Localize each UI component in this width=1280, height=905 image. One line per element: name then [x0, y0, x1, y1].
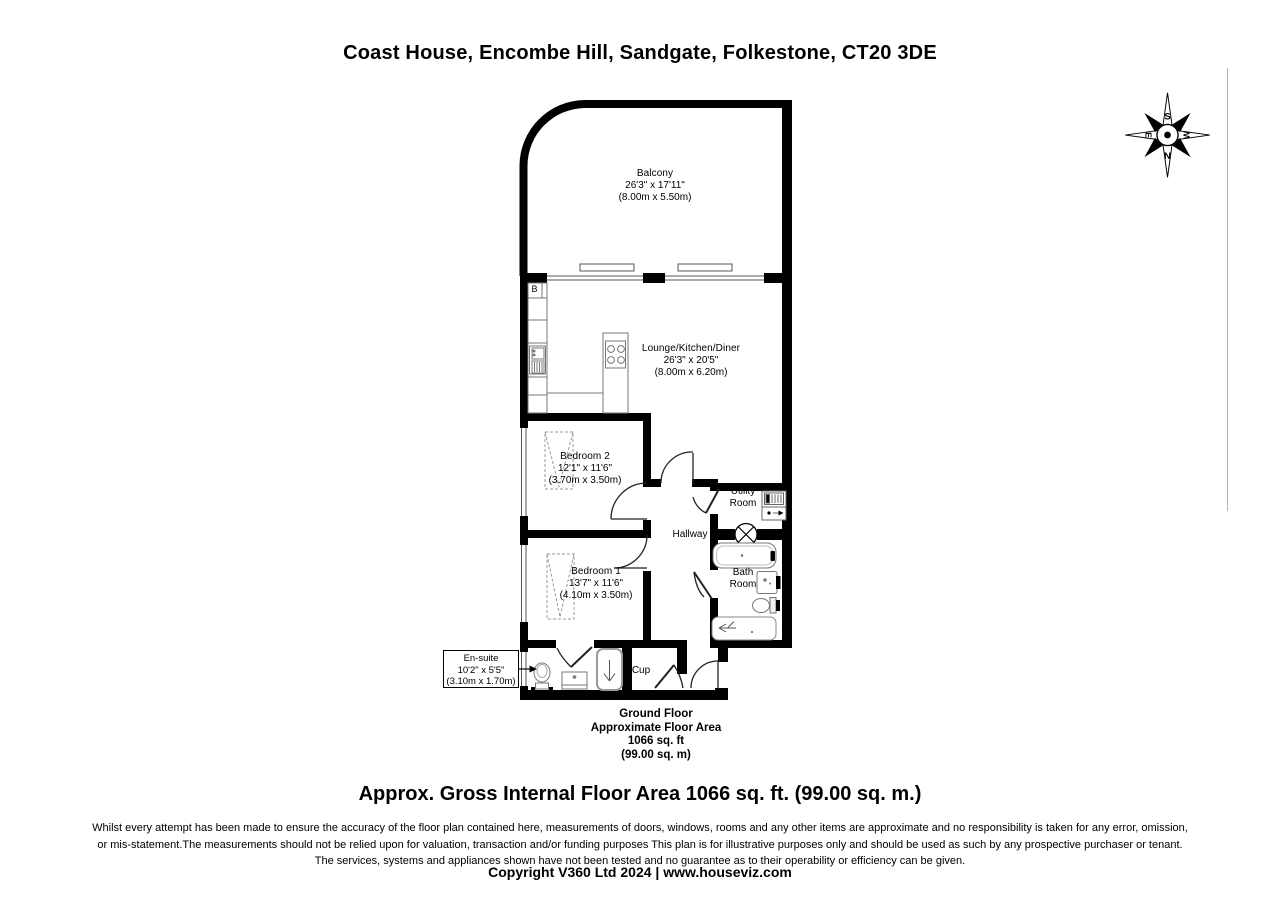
bedroom2-label: Bedroom 2 12'1" x 11'6" (3.70m x 3.50m) [500, 451, 670, 487]
floor-name: Ground Floor [556, 708, 756, 722]
ensuite-callout-label: En-suite 10'2" x 5'5" (3.10m x 1.70m) [443, 650, 519, 688]
disclaimer-line2: or mis-statement.The measurements should… [40, 837, 1240, 854]
room-dims-metric: (3.10m x 1.70m) [444, 676, 518, 688]
compass-label-west: W [1182, 130, 1192, 139]
bathtub-icon [713, 543, 776, 568]
sliding-door-panels [580, 264, 732, 271]
compass-label-north: N [1164, 151, 1171, 162]
cupboard-label: Cup [611, 665, 671, 677]
hallway-label: Hallway [650, 529, 730, 541]
balcony-label: Balcony 26'3" x 17'11" (8.00m x 5.50m) [565, 168, 745, 204]
utility-room-label: Utility Room [708, 486, 778, 510]
room-name: Cup [611, 665, 671, 677]
extractor-fan-icon [735, 524, 757, 546]
disclaimer-line1: Whilst every attempt has been made to en… [40, 820, 1240, 837]
room-name: Bedroom 2 [500, 451, 670, 463]
entry-door [691, 661, 718, 688]
room-name-line2: Room [708, 498, 778, 510]
room-name-line1: Utility [708, 486, 778, 498]
bathroom-label: Bath Room [708, 567, 778, 591]
lounge-label: Lounge/Kitchen/Diner 26'3" x 20'5" (8.00… [591, 343, 791, 379]
room-dims-imperial: 13'7" x 11'6" [511, 578, 681, 590]
bedroom2-door [611, 483, 647, 519]
floor-area-imperial: 1066 sq. ft [556, 735, 756, 749]
page-right-border [1227, 68, 1228, 511]
room-dims-imperial: 10'2" x 5'5" [444, 665, 518, 677]
room-dims-imperial: 26'3" x 17'11" [565, 180, 745, 192]
room-dims-metric: (8.00m x 6.20m) [591, 367, 791, 379]
floor-area-caption: Approximate Floor Area [556, 722, 756, 736]
bathroom-fixtures [712, 543, 781, 640]
floor-area-metric: (99.00 sq. m) [556, 749, 756, 763]
room-name-line1: Bath [708, 567, 778, 579]
floor-summary: Ground Floor Approximate Floor Area 1066… [556, 708, 756, 762]
boiler-label: B [527, 284, 542, 294]
ensuite-toilet-icon [531, 663, 553, 691]
room-name: Lounge/Kitchen/Diner [591, 343, 791, 355]
room-dims-imperial: 26'3" x 20'5" [591, 355, 791, 367]
ensuite-basin-icon [562, 672, 587, 689]
compass-rose-icon: S N E W [1122, 88, 1214, 184]
floorplan-page: Coast House, Encombe Hill, Sandgate, Fol… [0, 0, 1280, 905]
ensuite-fixtures [531, 649, 622, 691]
compass-hub-dot [1164, 132, 1171, 139]
bedroom1-label: Bedroom 1 13'7" x 11'6" (4.10m x 3.50m) [511, 566, 681, 602]
room-dims-metric: (8.00m x 5.50m) [565, 192, 745, 204]
bedroom1-door [614, 535, 647, 568]
compass-label-east: E [1143, 132, 1153, 138]
room-dims-metric: (3.70m x 3.50m) [500, 475, 670, 487]
sink-icon [530, 346, 546, 374]
room-name: En-suite [444, 653, 518, 665]
room-dims-imperial: 12'1" x 11'6" [500, 463, 670, 475]
room-name: Balcony [565, 168, 745, 180]
shower-icon [712, 617, 776, 640]
room-name: Bedroom 1 [511, 566, 681, 578]
gross-area-line: Approx. Gross Internal Floor Area 1066 s… [0, 783, 1280, 806]
room-name-line2: Room [708, 579, 778, 591]
disclaimer-text: Whilst every attempt has been made to en… [40, 820, 1240, 870]
room-name: Hallway [650, 529, 730, 541]
page-title: Coast House, Encombe Hill, Sandgate, Fol… [0, 42, 1280, 65]
ensuite-door [557, 647, 592, 667]
room-dims-metric: (4.10m x 3.50m) [511, 590, 681, 602]
compass-label-south: S [1164, 112, 1171, 123]
copyright-line: Copyright V360 Ltd 2024 | www.houseviz.c… [0, 864, 1280, 880]
toilet-icon [753, 598, 781, 614]
